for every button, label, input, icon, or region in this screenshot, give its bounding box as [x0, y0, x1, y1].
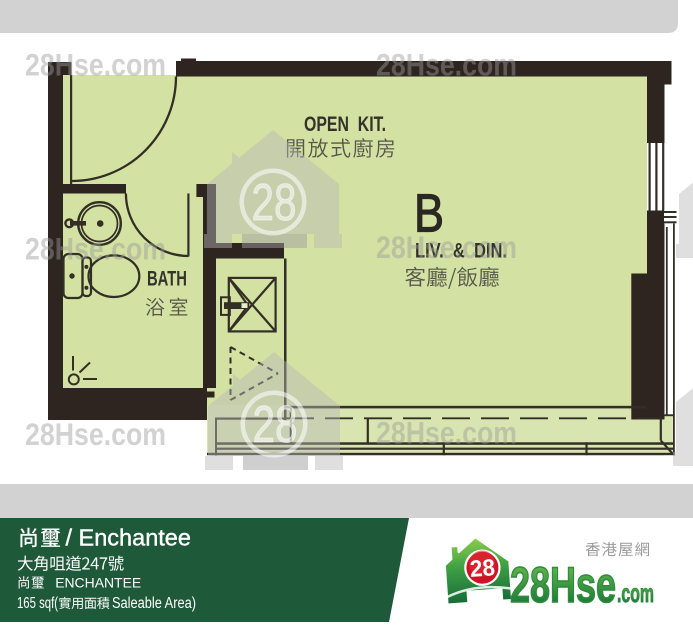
svg-text:28Hse.com: 28Hse.com [25, 416, 166, 452]
svg-text:28: 28 [469, 554, 496, 582]
svg-text:ENCHANTEE: ENCHANTEE [55, 575, 141, 591]
svg-text:OPEN KIT.: OPEN KIT. [304, 112, 386, 136]
svg-text:28Hse.com: 28Hse.com [376, 47, 517, 83]
svg-text:28Hse.com: 28Hse.com [376, 229, 517, 265]
svg-text:.com: .com [617, 578, 654, 608]
svg-text:28Hse.com: 28Hse.com [25, 47, 166, 83]
svg-text:28Hse.com: 28Hse.com [376, 415, 517, 451]
svg-text:165 sqf(: 165 sqf( [17, 595, 59, 612]
svg-text:BATH: BATH [147, 267, 187, 291]
svg-text:28: 28 [253, 396, 298, 454]
svg-text:Saleable Area): Saleable Area) [112, 595, 196, 612]
svg-text:/ Enchantee: / Enchantee [66, 525, 191, 551]
svg-text:28Hse.com: 28Hse.com [25, 231, 166, 267]
svg-text:28: 28 [252, 174, 297, 232]
svg-text:28Hse: 28Hse [510, 557, 616, 613]
